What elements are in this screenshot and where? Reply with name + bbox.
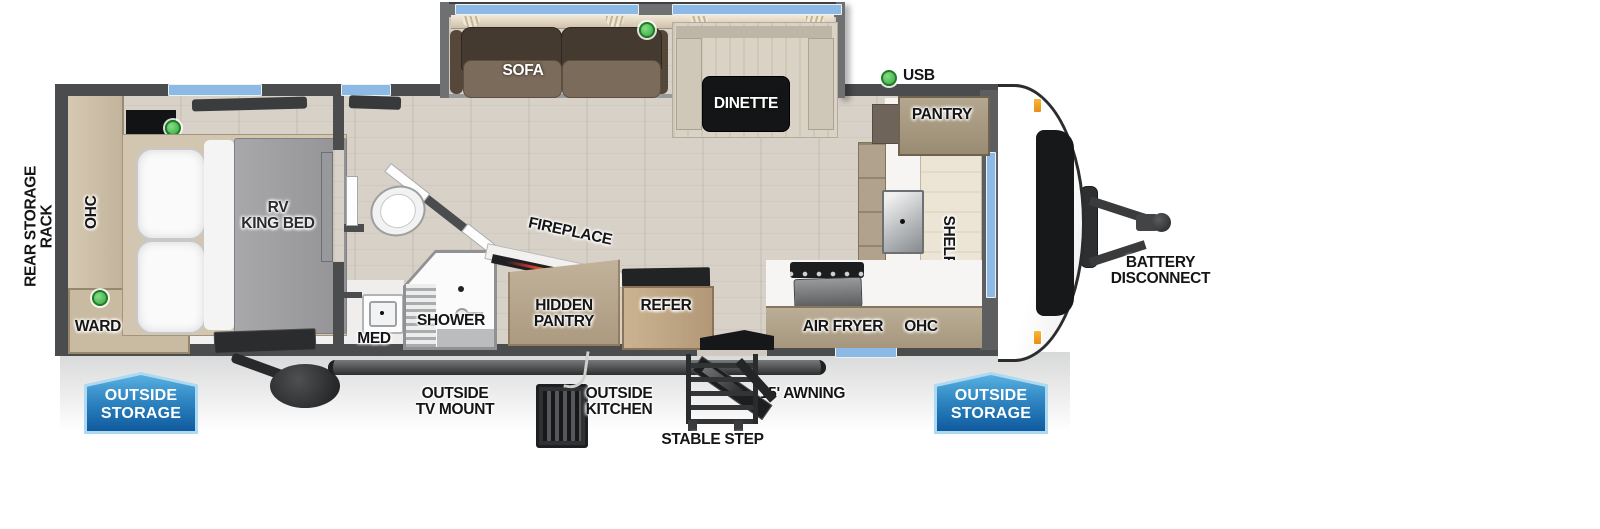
rv-floorplan-canvas: SOFA DINETTE OHC RV KING BED WARD MED (0, 0, 1600, 529)
outside-storage-label: OUTSIDE STORAGE (934, 387, 1048, 424)
usb-indicator-dot (881, 70, 897, 86)
front-window (986, 152, 996, 298)
bedroom-window (168, 84, 262, 96)
bath-shelf (349, 95, 401, 110)
shower-drain (458, 286, 464, 292)
bed-pillow (136, 240, 206, 334)
dinette-table: DINETTE (702, 76, 790, 132)
microwave (872, 104, 900, 144)
kitchen-sink (882, 190, 924, 254)
outside-storage-badge-front: OUTSIDE STORAGE (934, 372, 1048, 434)
usb-label: USB (903, 68, 943, 84)
med-sink-drain (380, 311, 384, 315)
outside-storage-label: OUTSIDE STORAGE (84, 387, 198, 424)
grill-slats (543, 391, 581, 441)
med-cabinet-sink (362, 294, 404, 334)
toilet-bowl (375, 188, 421, 233)
slideout-wall-left (440, 2, 449, 98)
ladder-foot (688, 420, 697, 431)
sofa-seat-cushion (562, 60, 661, 98)
stable-step-label: STABLE STEP (650, 432, 775, 448)
dinette-label: DINETTE (714, 96, 778, 112)
air-fryer-label: AIR FRYER (783, 319, 903, 335)
hitch-coupler-knob (1152, 213, 1171, 232)
front-cap-window (1036, 130, 1074, 316)
slideout-window-left (455, 4, 639, 15)
shower-label: SHOWER (405, 313, 497, 329)
pantry-cabinet (898, 96, 990, 156)
refer-label: REFER (622, 298, 710, 314)
outside-tv-mount-label: OUTSIDE TV MOUNT (393, 386, 517, 419)
marker-light (1033, 98, 1042, 113)
bath-wall-stub (335, 292, 362, 298)
pantry-label: PANTRY (898, 107, 986, 123)
bedroom-wardrobe-indicator-dot (92, 290, 108, 306)
bed-sheet (204, 140, 235, 330)
slideout-indicator-dot (639, 22, 655, 38)
mounted-tv-panel (214, 328, 317, 354)
outside-storage-badge-rear: OUTSIDE STORAGE (84, 372, 198, 434)
sofa-label: SOFA (473, 63, 573, 79)
bath-window (341, 84, 391, 96)
rv-king-bed-label: RV KING BED (222, 200, 334, 233)
stove-knob-bar (790, 262, 864, 278)
stove-body (793, 277, 862, 309)
ward-label: WARD (62, 319, 134, 335)
med-label: MED (346, 331, 402, 347)
battery-disconnect-label: BATTERY DISCONNECT (1098, 255, 1223, 288)
rear-storage-rack-label: REAR STORAGE RACK (24, 146, 57, 306)
shower-ledge (437, 329, 494, 347)
outside-kitchen-grill (536, 384, 588, 448)
dinette-bench (808, 38, 834, 130)
bedroom-door-opening (333, 150, 344, 262)
outside-kitchen-label: OUTSIDE KITCHEN (582, 386, 656, 419)
bedroom-ohc-label: OHC (84, 182, 100, 242)
marker-light (1033, 330, 1042, 345)
slideout-window-right (672, 4, 842, 15)
ladder-foot (734, 420, 743, 431)
bedroom-sliding-door (321, 152, 333, 262)
kitchen-ohc-label: OHC (894, 319, 948, 335)
dinette-back-cushion (676, 26, 832, 38)
sink-drain (900, 219, 905, 224)
bed-pillow (136, 148, 206, 240)
hidden-pantry-label: HIDDEN PANTRY (508, 298, 620, 331)
bath-door-leaf (346, 176, 358, 226)
dinette-bench (676, 38, 702, 130)
wall-rear (55, 84, 68, 356)
